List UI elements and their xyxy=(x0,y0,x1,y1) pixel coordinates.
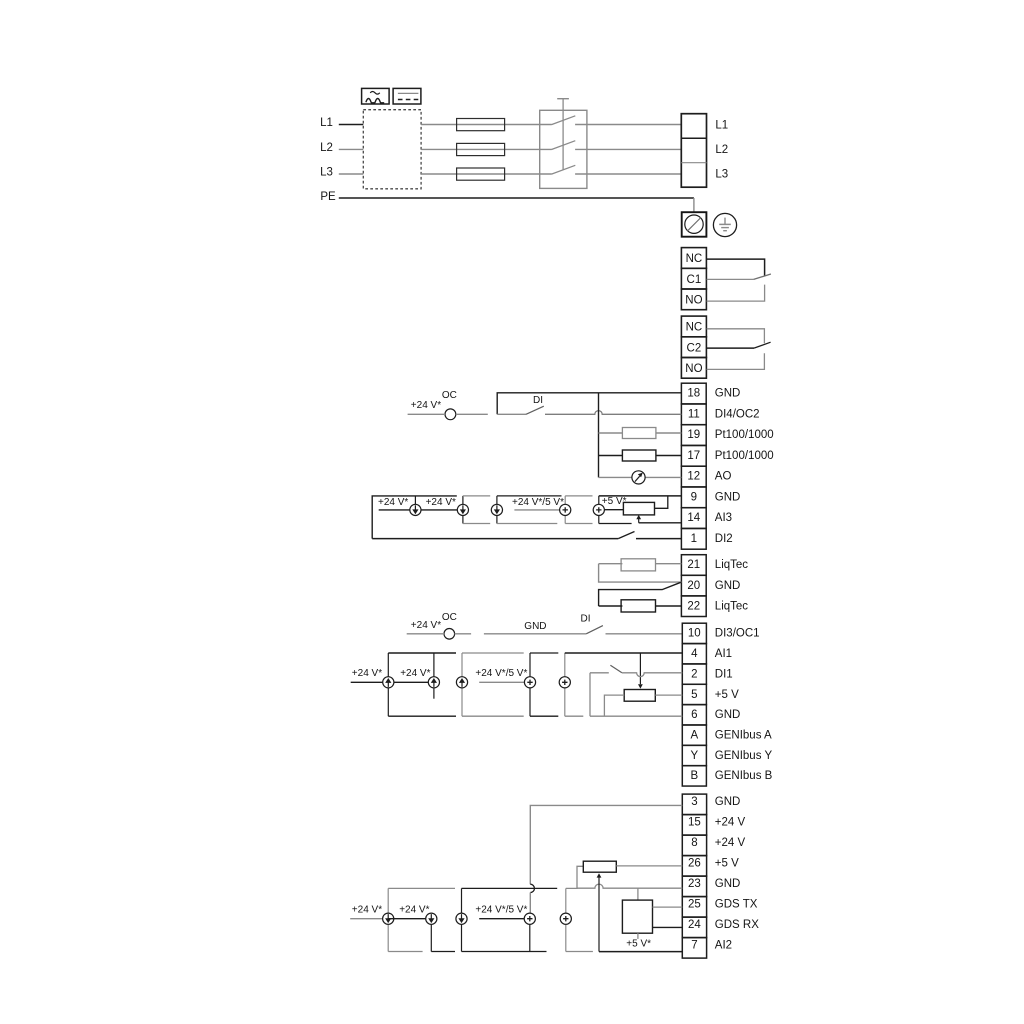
svg-text:7: 7 xyxy=(691,940,697,952)
svg-text:DI: DI xyxy=(533,395,543,406)
svg-text:1: 1 xyxy=(691,533,697,545)
svg-text:GND: GND xyxy=(715,388,741,400)
svg-text:24: 24 xyxy=(688,919,701,931)
svg-text:AI2: AI2 xyxy=(715,940,732,952)
svg-text:GDS RX: GDS RX xyxy=(715,919,759,931)
svg-text:DI: DI xyxy=(581,613,591,624)
svg-text:+24 V*: +24 V* xyxy=(426,497,456,508)
svg-text:+24 V*/5 V*: +24 V*/5 V* xyxy=(512,497,564,508)
svg-text:DI3/OC1: DI3/OC1 xyxy=(715,628,760,640)
svg-text:+24 V*: +24 V* xyxy=(352,904,382,915)
svg-text:NC: NC xyxy=(686,322,703,334)
svg-text:A: A xyxy=(690,730,698,742)
svg-text:LiqTec: LiqTec xyxy=(715,600,748,612)
svg-text:L3: L3 xyxy=(715,169,728,181)
svg-text:+5 V*: +5 V* xyxy=(626,939,651,950)
svg-text:GDS TX: GDS TX xyxy=(715,899,758,911)
svg-text:10: 10 xyxy=(688,628,701,640)
svg-text:GND: GND xyxy=(715,878,741,890)
svg-text:22: 22 xyxy=(687,600,700,612)
svg-text:B: B xyxy=(690,770,698,782)
svg-text:8: 8 xyxy=(691,837,697,849)
svg-text:GND: GND xyxy=(715,796,741,808)
svg-text:OC: OC xyxy=(442,612,457,623)
svg-text:AI1: AI1 xyxy=(715,648,732,660)
svg-text:+24 V*: +24 V* xyxy=(352,668,382,679)
svg-text:+5 V: +5 V xyxy=(715,689,739,701)
svg-text:GND: GND xyxy=(715,580,741,592)
svg-text:C1: C1 xyxy=(687,274,702,286)
svg-text:+24 V: +24 V xyxy=(715,837,746,849)
svg-text:+24 V*: +24 V* xyxy=(411,620,441,631)
svg-text:3: 3 xyxy=(691,796,697,808)
svg-text:GENIbus B: GENIbus B xyxy=(715,770,773,782)
svg-text:GND: GND xyxy=(715,709,741,721)
svg-text:9: 9 xyxy=(691,492,697,504)
svg-text:19: 19 xyxy=(687,429,700,441)
svg-text:+24 V*: +24 V* xyxy=(378,497,408,508)
svg-text:DI1: DI1 xyxy=(715,668,733,680)
svg-text:NC: NC xyxy=(686,253,703,265)
svg-text:5: 5 xyxy=(691,689,697,701)
svg-text:Pt100/1000: Pt100/1000 xyxy=(715,429,774,441)
svg-text:L3: L3 xyxy=(320,166,333,178)
svg-text:+24 V*/5 V*: +24 V*/5 V* xyxy=(475,668,527,679)
svg-text:Y: Y xyxy=(690,750,698,762)
svg-text:4: 4 xyxy=(691,648,698,660)
svg-text:DI4/OC2: DI4/OC2 xyxy=(715,409,760,421)
svg-text:18: 18 xyxy=(687,388,700,400)
svg-text:+24 V*: +24 V* xyxy=(411,400,441,411)
svg-text:23: 23 xyxy=(688,878,701,890)
svg-text:25: 25 xyxy=(688,899,701,911)
svg-text:NO: NO xyxy=(685,363,702,375)
svg-text:L2: L2 xyxy=(320,142,333,154)
svg-text:NO: NO xyxy=(685,295,702,307)
svg-text:2: 2 xyxy=(691,668,697,680)
svg-text:AI3: AI3 xyxy=(715,512,732,524)
svg-text:+24 V*: +24 V* xyxy=(399,904,429,915)
svg-text:AO: AO xyxy=(715,471,732,483)
svg-text:LiqTec: LiqTec xyxy=(715,559,748,571)
svg-text:15: 15 xyxy=(688,817,701,829)
svg-text:C2: C2 xyxy=(687,342,702,354)
svg-text:DI2: DI2 xyxy=(715,533,733,545)
svg-text:GND: GND xyxy=(524,621,546,632)
svg-text:L1: L1 xyxy=(320,117,333,129)
svg-text:+24 V*/5 V*: +24 V*/5 V* xyxy=(475,904,527,915)
svg-text:PE: PE xyxy=(320,191,336,203)
svg-text:21: 21 xyxy=(687,559,700,571)
svg-text:12: 12 xyxy=(687,471,700,483)
svg-text:20: 20 xyxy=(687,580,700,592)
svg-text:Pt100/1000: Pt100/1000 xyxy=(715,450,774,462)
svg-text:+5 V: +5 V xyxy=(715,858,739,870)
svg-text:26: 26 xyxy=(688,858,701,870)
svg-text:GENIbus Y: GENIbus Y xyxy=(715,750,773,762)
svg-text:L1: L1 xyxy=(715,119,728,131)
svg-text:L2: L2 xyxy=(715,144,728,156)
svg-text:17: 17 xyxy=(687,450,700,462)
svg-text:GND: GND xyxy=(715,492,741,504)
svg-text:GENIbus A: GENIbus A xyxy=(715,730,772,742)
svg-text:+24 V: +24 V xyxy=(715,817,746,829)
svg-text:11: 11 xyxy=(688,409,700,421)
svg-text:+24 V*: +24 V* xyxy=(400,668,430,679)
svg-text:6: 6 xyxy=(691,709,697,721)
svg-text:14: 14 xyxy=(687,512,700,524)
svg-text:OC: OC xyxy=(442,390,457,401)
